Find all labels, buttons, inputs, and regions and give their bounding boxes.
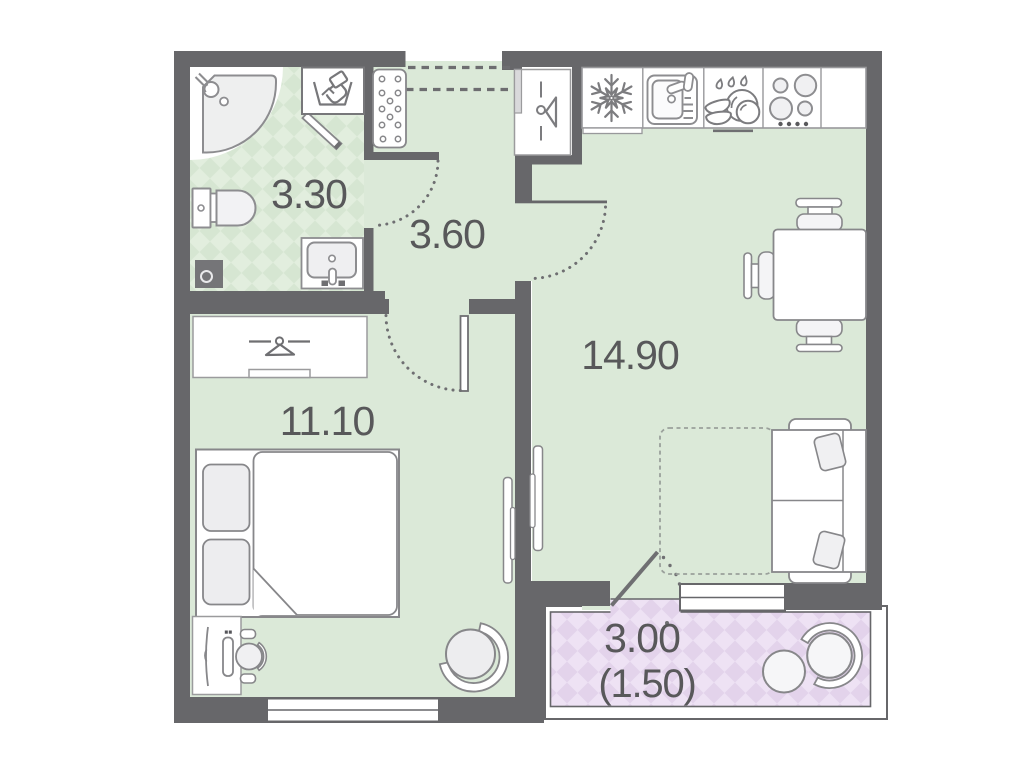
svg-text:11.10: 11.10 [280,398,375,444]
svg-text:3.60: 3.60 [409,211,485,257]
svg-text:14.90: 14.90 [581,332,679,378]
svg-text:(1.50): (1.50) [598,662,695,706]
svg-text:3.30: 3.30 [271,171,347,217]
svg-text:3.00: 3.00 [604,615,680,661]
